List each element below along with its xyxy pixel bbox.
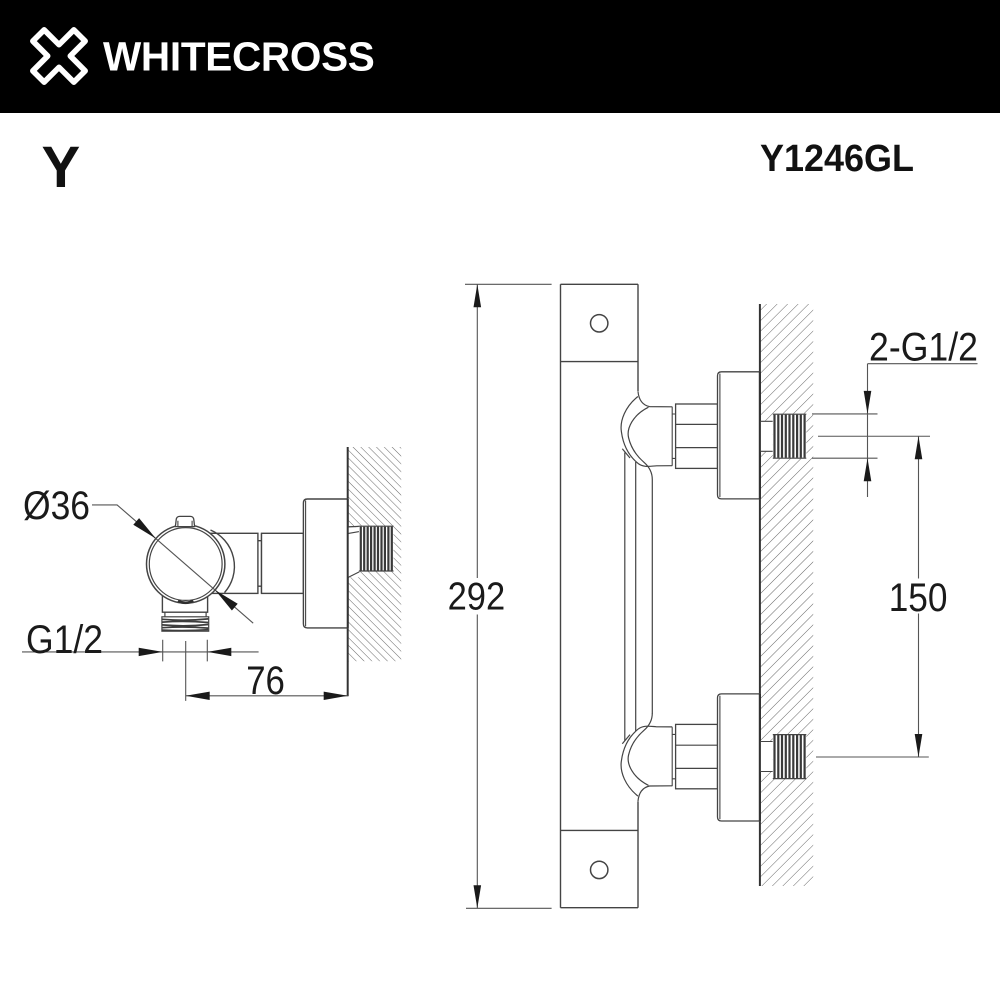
svg-text:2-G1/2: 2-G1/2 — [869, 326, 978, 370]
svg-text:Y1246GL: Y1246GL — [760, 138, 914, 180]
svg-text:Ø36: Ø36 — [23, 484, 90, 528]
svg-text:150: 150 — [889, 576, 948, 620]
svg-text:292: 292 — [448, 576, 506, 619]
svg-text:WHITECROSS: WHITECROSS — [103, 34, 375, 80]
svg-text:76: 76 — [246, 659, 285, 703]
svg-text:G1/2: G1/2 — [26, 618, 103, 662]
svg-text:Y: Y — [42, 135, 81, 200]
